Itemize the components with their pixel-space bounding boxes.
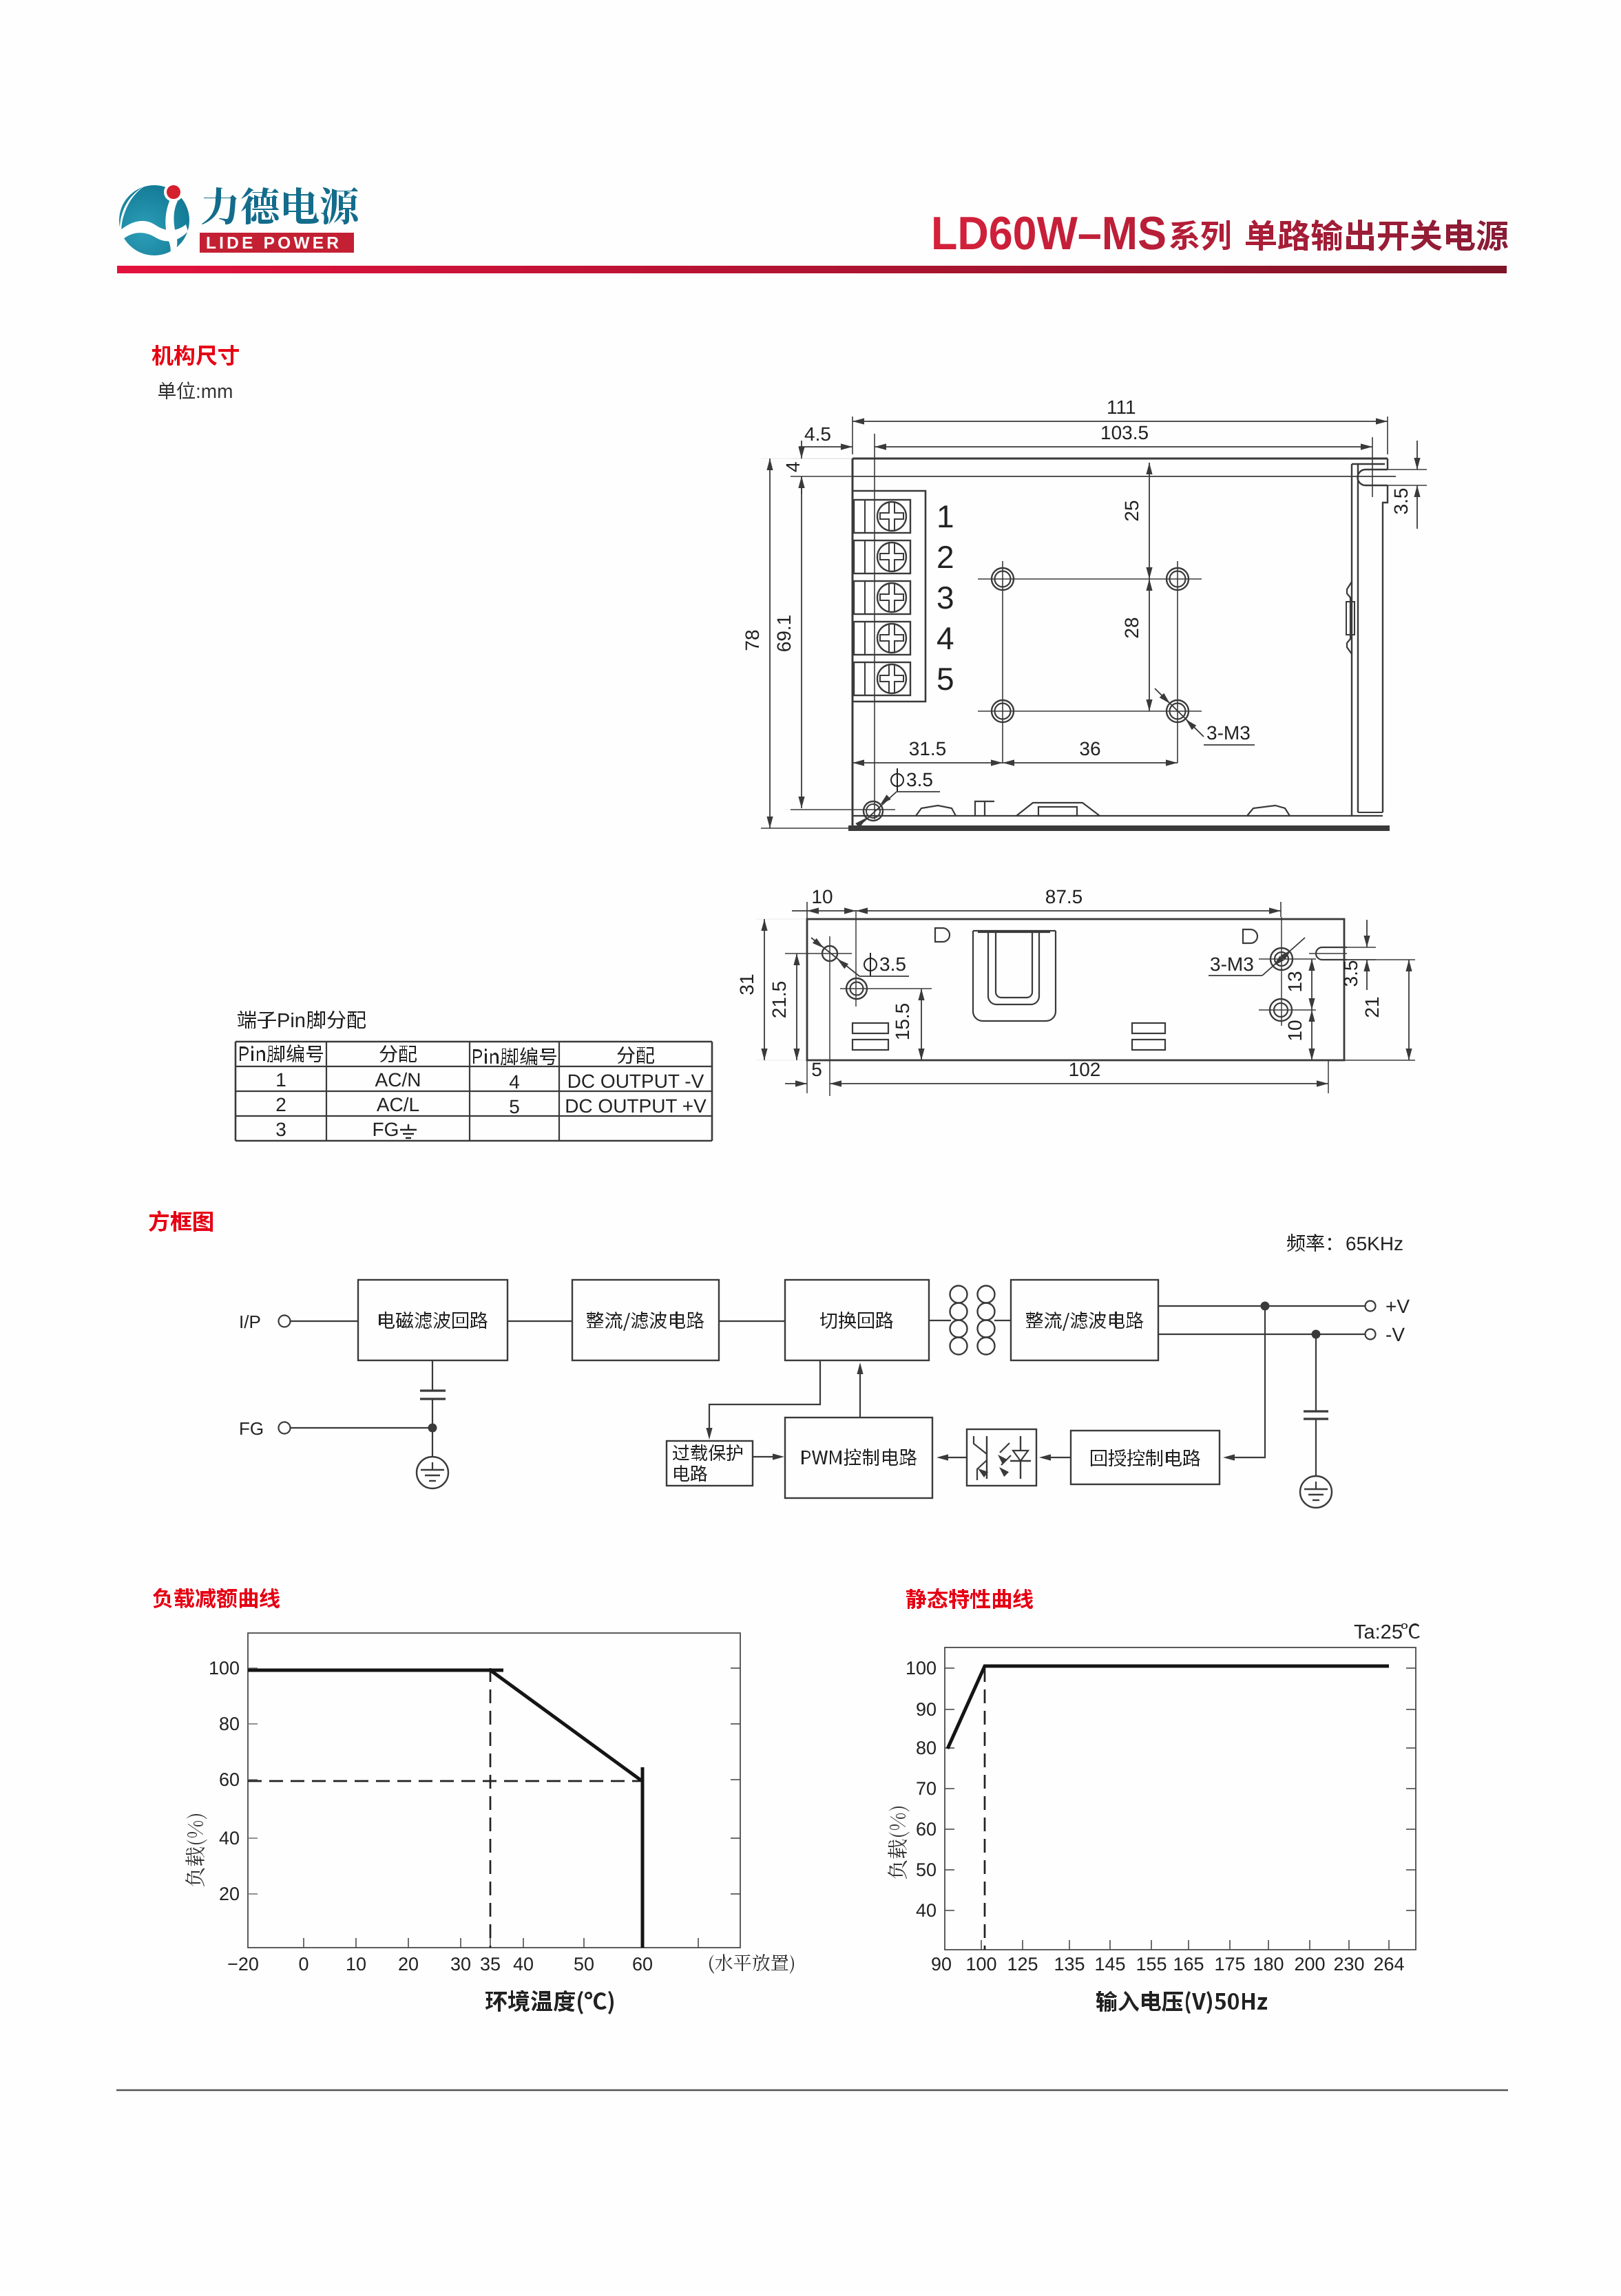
svg-text:180: 180: [1253, 1954, 1284, 1974]
svg-text:AC/L: AC/L: [377, 1094, 419, 1115]
svg-text:Pin: Pin: [277, 1010, 306, 1032]
svg-text:DC OUTPUT +V: DC OUTPUT +V: [565, 1095, 707, 1117]
svg-text:40: 40: [219, 1828, 240, 1849]
svg-text:4: 4: [937, 620, 954, 656]
svg-text:5: 5: [509, 1096, 520, 1117]
svg-text:60: 60: [219, 1769, 240, 1790]
svg-text:+V: +V: [1385, 1296, 1410, 1317]
svg-text:4.5: 4.5: [804, 423, 831, 445]
svg-text:25: 25: [1121, 500, 1142, 521]
svg-text:4: 4: [782, 461, 804, 472]
svg-text:LD60W–MS: LD60W–MS: [931, 207, 1167, 260]
svg-text:Ta:25: Ta:25: [1354, 1621, 1403, 1643]
svg-text:90: 90: [916, 1699, 937, 1720]
svg-text:FG: FG: [373, 1119, 399, 1140]
svg-text:3-M3: 3-M3: [1210, 954, 1254, 975]
svg-text:3.5: 3.5: [879, 954, 906, 975]
svg-text:102: 102: [1069, 1059, 1101, 1080]
svg-text:103.5: 103.5: [1100, 422, 1149, 443]
svg-text:87.5: 87.5: [1045, 886, 1083, 907]
svg-text:5: 5: [937, 661, 954, 697]
svg-text:90: 90: [931, 1954, 952, 1974]
svg-text:40: 40: [916, 1900, 937, 1921]
svg-text:65KHz: 65KHz: [1346, 1233, 1403, 1254]
svg-text:I/P: I/P: [239, 1312, 261, 1332]
svg-text:1: 1: [275, 1069, 286, 1091]
svg-text:80: 80: [916, 1738, 937, 1758]
svg-text:10: 10: [346, 1954, 366, 1974]
svg-text:0: 0: [298, 1954, 308, 1974]
svg-text:20: 20: [398, 1954, 419, 1974]
svg-text:69.1: 69.1: [773, 615, 795, 653]
svg-text::mm: :mm: [196, 381, 233, 402]
svg-text:60: 60: [916, 1819, 937, 1840]
svg-text:100: 100: [906, 1658, 937, 1678]
svg-text:40: 40: [513, 1954, 534, 1974]
svg-text:165: 165: [1173, 1954, 1204, 1974]
svg-text:2: 2: [275, 1094, 286, 1115]
svg-text:31.5: 31.5: [909, 738, 947, 759]
svg-text:80: 80: [219, 1714, 240, 1734]
svg-text:175: 175: [1214, 1954, 1245, 1974]
svg-text:145: 145: [1094, 1954, 1125, 1974]
svg-text:30: 30: [450, 1954, 471, 1974]
svg-text:50: 50: [574, 1954, 594, 1974]
svg-text:5: 5: [811, 1059, 822, 1080]
svg-text:15.5: 15.5: [892, 1003, 913, 1041]
svg-text:125: 125: [1007, 1954, 1038, 1974]
svg-text:111: 111: [1107, 397, 1136, 418]
svg-text:200: 200: [1294, 1954, 1325, 1974]
svg-text:28: 28: [1121, 617, 1142, 638]
svg-text:-V: -V: [1385, 1324, 1405, 1345]
svg-text:3.5: 3.5: [1390, 488, 1412, 515]
svg-text:4: 4: [509, 1071, 520, 1093]
svg-text:50: 50: [916, 1860, 937, 1880]
svg-text:230: 230: [1333, 1954, 1364, 1974]
svg-text:13: 13: [1284, 971, 1306, 992]
svg-text:78: 78: [742, 629, 763, 651]
svg-text:135: 135: [1054, 1954, 1085, 1974]
svg-text:DC OUTPUT -V: DC OUTPUT -V: [567, 1071, 704, 1092]
svg-text:70: 70: [916, 1778, 937, 1799]
svg-text:2: 2: [937, 539, 954, 575]
svg-text:3.5: 3.5: [1340, 960, 1361, 987]
svg-text:100: 100: [965, 1954, 996, 1974]
svg-text:AC/N: AC/N: [375, 1069, 421, 1091]
svg-text:100: 100: [209, 1658, 240, 1678]
svg-text:20: 20: [219, 1884, 240, 1904]
svg-text:155: 155: [1136, 1954, 1167, 1974]
svg-text:36: 36: [1079, 738, 1100, 759]
svg-text:21.5: 21.5: [768, 981, 790, 1019]
svg-text:3-M3: 3-M3: [1206, 722, 1251, 744]
svg-text:60: 60: [632, 1954, 653, 1974]
svg-text:−20: −20: [227, 1954, 259, 1974]
svg-text:LIDE POWER: LIDE POWER: [206, 234, 342, 253]
svg-text:FG: FG: [239, 1418, 264, 1439]
svg-text:264: 264: [1373, 1954, 1404, 1974]
svg-text:31: 31: [736, 973, 757, 995]
svg-text:21: 21: [1361, 996, 1383, 1018]
svg-text:3: 3: [937, 580, 954, 615]
svg-text:35: 35: [480, 1954, 501, 1974]
svg-text:10: 10: [1284, 1020, 1306, 1041]
svg-text:3.5: 3.5: [906, 769, 933, 790]
svg-text:1: 1: [937, 498, 954, 534]
svg-text:10: 10: [811, 886, 833, 907]
svg-text:3: 3: [275, 1119, 286, 1140]
